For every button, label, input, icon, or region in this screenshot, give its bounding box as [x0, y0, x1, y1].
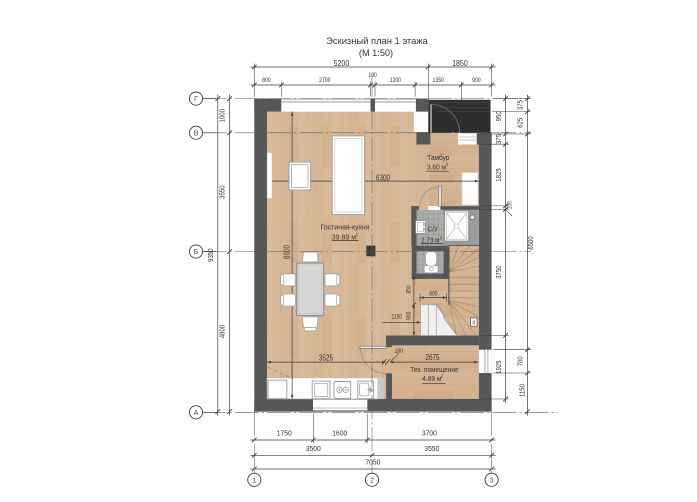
svg-text:3550: 3550 [424, 445, 439, 453]
svg-text:800: 800 [262, 78, 270, 85]
svg-text:1925: 1925 [496, 360, 504, 374]
svg-text:3550: 3550 [219, 185, 227, 199]
svg-text:3: 3 [490, 477, 494, 484]
svg-text:100: 100 [507, 201, 514, 209]
svg-text:3.60 м: 3.60 м [427, 164, 446, 171]
svg-text:700: 700 [517, 356, 525, 366]
svg-text:3500: 3500 [306, 445, 321, 453]
svg-text:375: 375 [517, 100, 525, 110]
svg-text:1825: 1825 [496, 168, 504, 182]
svg-text:Б: Б [194, 249, 199, 256]
svg-text:850: 850 [406, 285, 413, 293]
svg-text:900: 900 [472, 78, 480, 85]
svg-text:2700: 2700 [319, 78, 330, 85]
svg-text:100: 100 [368, 73, 376, 80]
svg-text:100: 100 [395, 349, 403, 356]
svg-text:375: 375 [496, 134, 504, 144]
svg-text:3750: 3750 [496, 265, 504, 279]
svg-text:1750: 1750 [277, 429, 292, 437]
svg-text:625: 625 [517, 117, 525, 127]
svg-text:900: 900 [406, 312, 413, 320]
svg-text:9350: 9350 [207, 248, 215, 262]
svg-text:5200: 5200 [334, 58, 350, 68]
svg-text:2: 2 [370, 477, 374, 484]
svg-text:950: 950 [496, 111, 504, 121]
svg-text:1350: 1350 [433, 78, 444, 85]
svg-text:7050: 7050 [365, 458, 380, 466]
svg-text:1600: 1600 [332, 429, 347, 437]
svg-text:3700: 3700 [422, 429, 437, 437]
svg-text:С/У: С/У [428, 226, 439, 233]
svg-text:1: 1 [252, 477, 256, 484]
svg-text:Гостиная-кухня: Гостиная-кухня [321, 225, 370, 232]
svg-text:6300: 6300 [376, 173, 390, 183]
svg-text:800: 800 [429, 291, 437, 298]
svg-text:1150: 1150 [519, 384, 527, 397]
svg-text:Тех. помещение: Тех. помещение [410, 367, 459, 374]
svg-text:6500: 6500 [528, 236, 536, 250]
svg-text:(М 1:50): (М 1:50) [359, 48, 393, 58]
svg-text:4800: 4800 [219, 325, 227, 339]
svg-text:1200: 1200 [390, 78, 401, 85]
svg-text:Тамбур: Тамбур [427, 154, 450, 162]
svg-text:Г: Г [194, 96, 198, 103]
svg-text:2675: 2675 [425, 352, 439, 362]
svg-text:В: В [194, 130, 199, 137]
svg-text:Эскизный план 1 этажа: Эскизный план 1 этажа [326, 35, 428, 46]
svg-text:1000: 1000 [219, 109, 227, 123]
svg-text:3525: 3525 [319, 353, 333, 363]
svg-text:8: 8 [472, 320, 475, 326]
svg-text:8600: 8600 [282, 245, 292, 259]
svg-text:4.89 м: 4.89 м [422, 376, 441, 383]
svg-text:А: А [194, 410, 199, 417]
svg-text:1150: 1150 [392, 314, 403, 321]
svg-text:1850: 1850 [452, 58, 468, 68]
